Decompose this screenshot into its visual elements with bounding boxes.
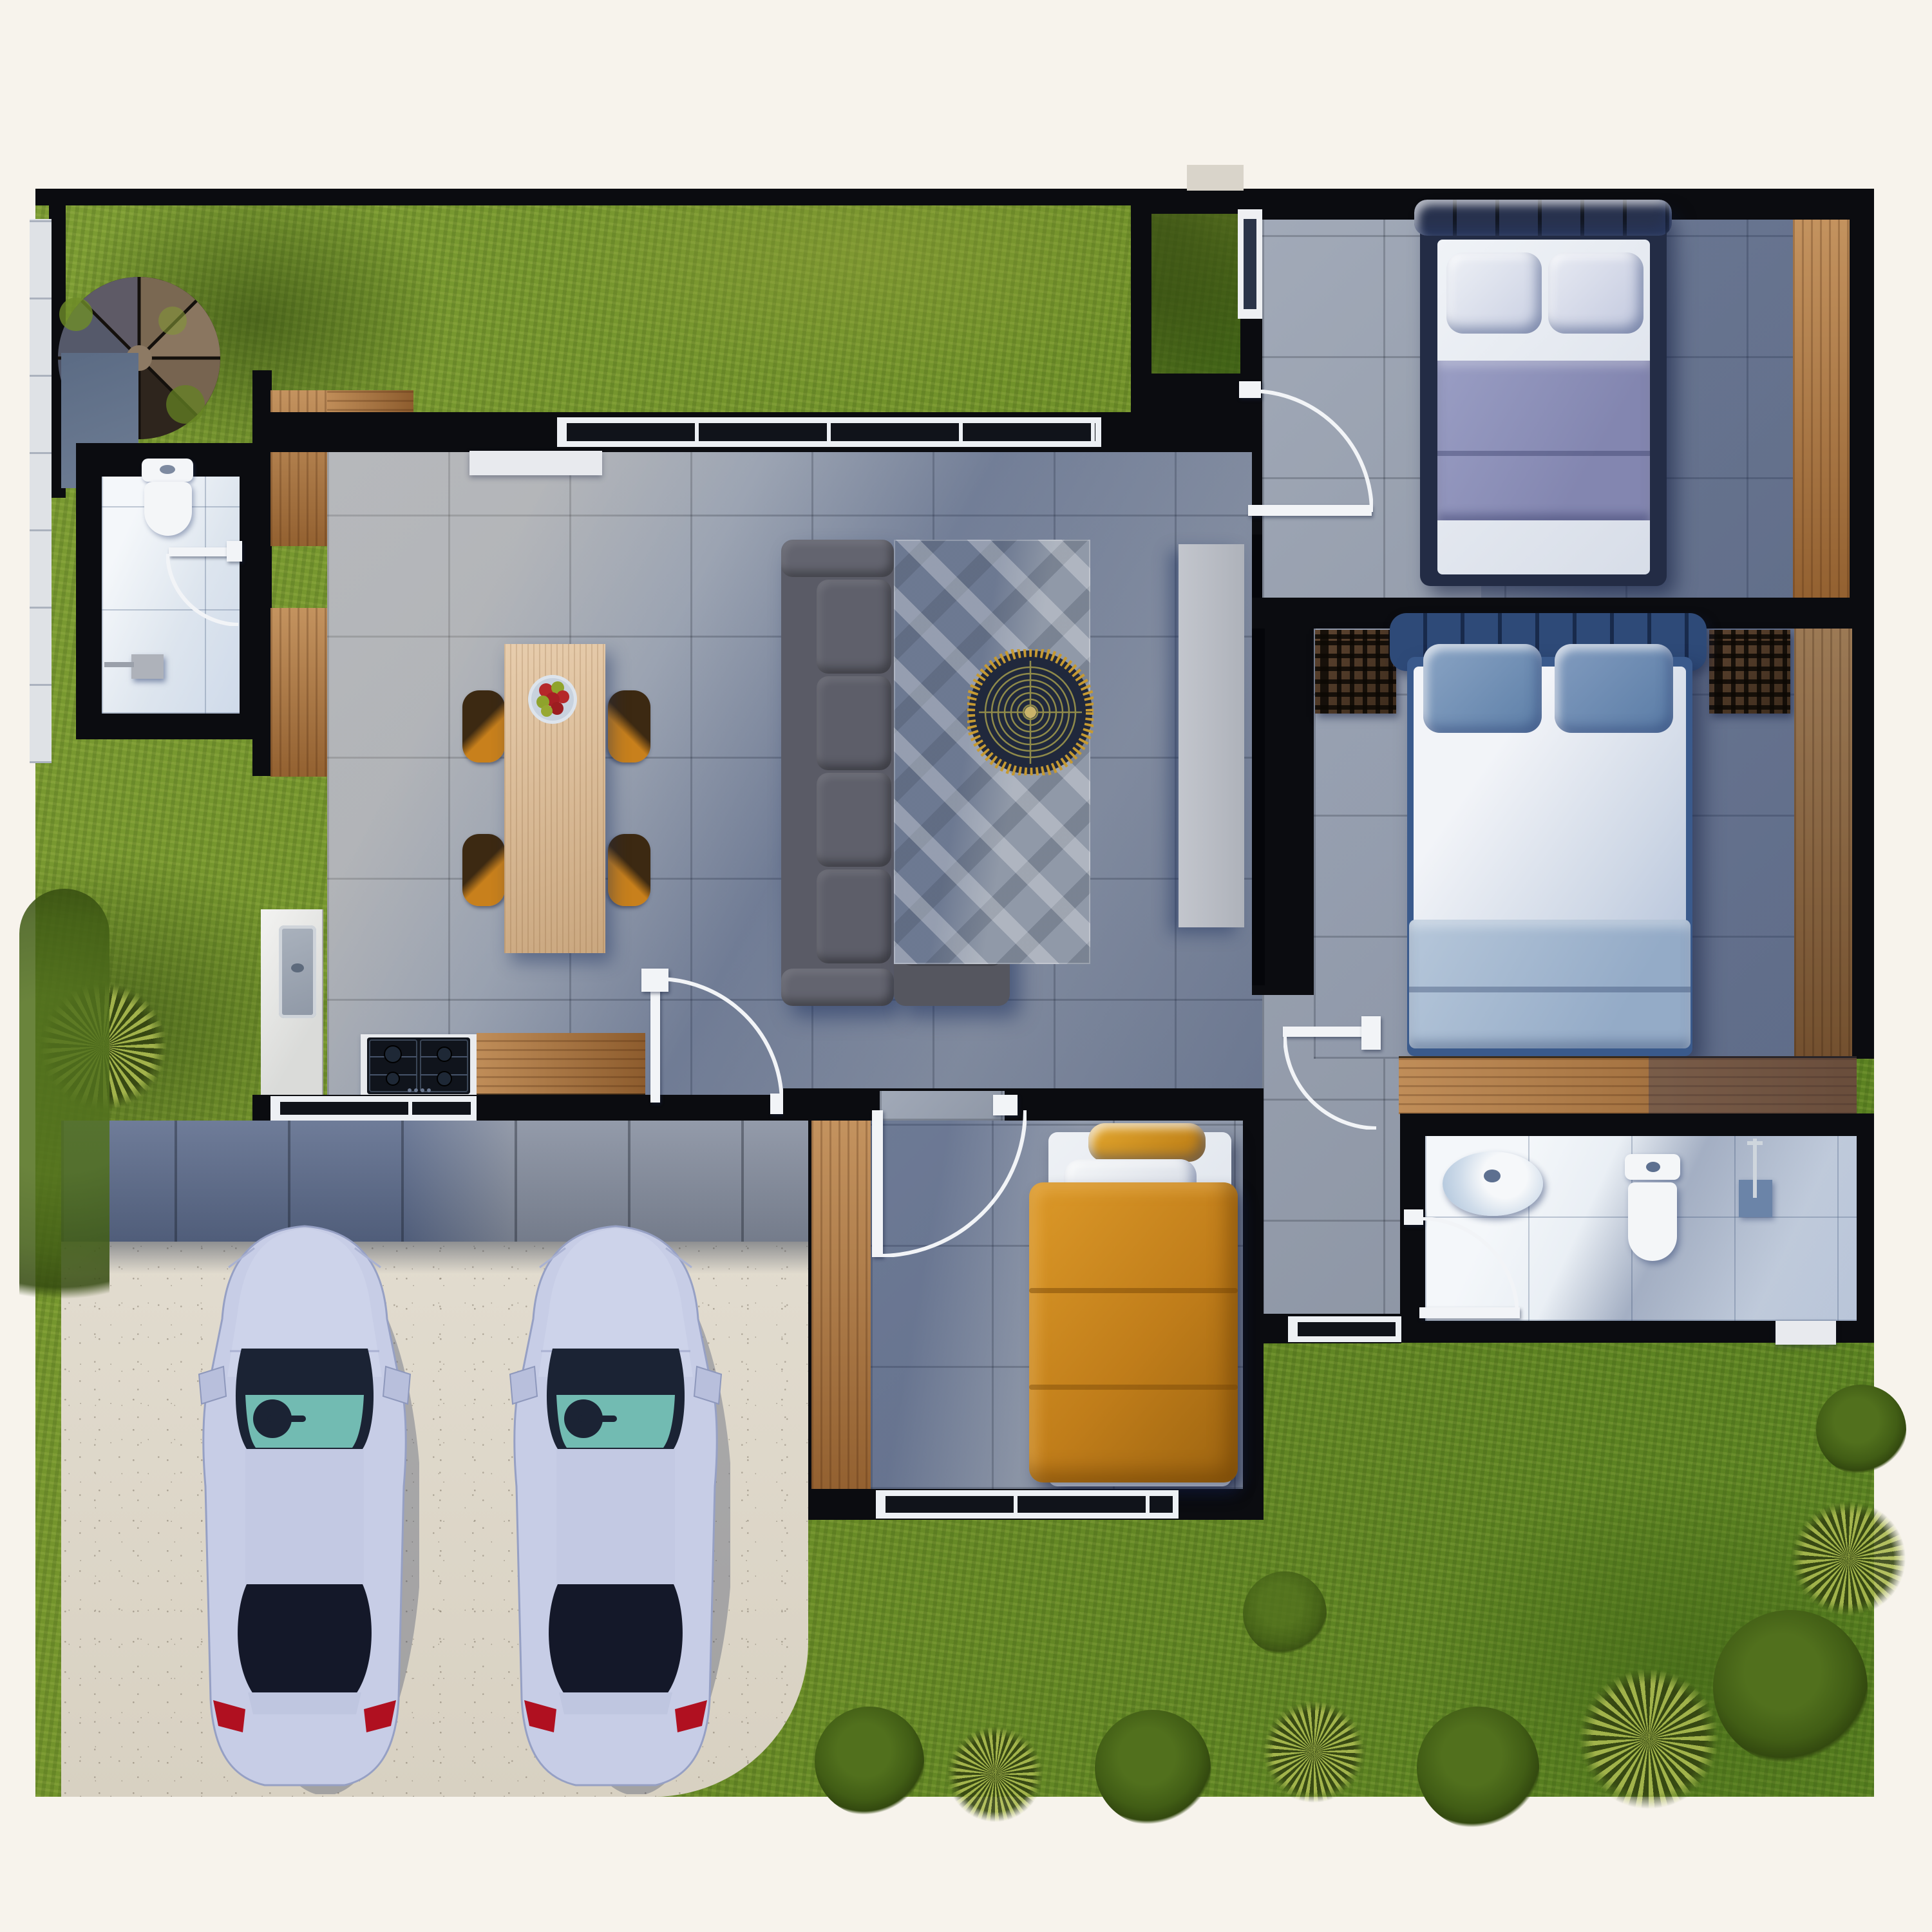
- sofa-armrest-bottom: [781, 969, 894, 1006]
- vessel-sink-drain: [1484, 1170, 1501, 1182]
- bedroom1-wardrobe: [1793, 220, 1850, 600]
- toilet-left-button: [160, 465, 175, 474]
- gas-cooktop: [367, 1037, 470, 1094]
- bush-bottom-5: [1417, 1707, 1539, 1829]
- bush-bottom-2: [947, 1726, 1043, 1823]
- living-top-windows: [557, 417, 1101, 447]
- sofa-cushion-4: [817, 869, 891, 963]
- dining-chair-bottom-left: [462, 834, 505, 906]
- bed3-duvet-fold2: [1029, 1385, 1238, 1390]
- plot-wall-top: [35, 189, 1262, 205]
- floor-plan-scene: [0, 0, 1932, 1932]
- sofa-cushion-1: [817, 580, 891, 674]
- bed1-duvet: [1437, 361, 1650, 520]
- bedroom3-door-gap-fill: [783, 1088, 880, 1121]
- fruit-bowl: [527, 674, 578, 725]
- window-sill-left: [469, 451, 602, 475]
- kitchen-south-window: [270, 1096, 477, 1121]
- bedroom2-door-arc: [1283, 1036, 1378, 1130]
- bathroom-right-step: [1776, 1321, 1836, 1345]
- bed2-pillow-left: [1423, 644, 1542, 733]
- entry-garden: [1151, 214, 1240, 374]
- dining-chair-bottom-right: [608, 834, 650, 906]
- bush-corner-right: [1713, 1610, 1868, 1765]
- living-door-arc: [656, 977, 783, 1104]
- bed1-pillow-right: [1548, 252, 1643, 334]
- bed1-pillow-left: [1446, 252, 1542, 334]
- bathroom-right-door-arc: [1421, 1217, 1519, 1315]
- bush-bottom-6: [1578, 1668, 1719, 1810]
- bed1-duvet-fold: [1437, 451, 1650, 456]
- front-step: [1187, 165, 1244, 191]
- vessel-sink: [1443, 1151, 1543, 1216]
- shower-arm: [104, 662, 134, 667]
- bush-bottom-1: [815, 1707, 924, 1816]
- bedroom3-window: [876, 1490, 1179, 1519]
- toilet-left-bowl: [144, 482, 192, 536]
- toilet-right-bowl: [1628, 1182, 1677, 1261]
- bush-right-edge-2: [1816, 1385, 1906, 1475]
- dining-chair-top-right: [608, 690, 650, 762]
- bush-right-edge-1: [1790, 1501, 1906, 1616]
- bed2-duvet: [1409, 920, 1690, 1048]
- hedge-left: [19, 889, 109, 1378]
- corridor-south-window: [1288, 1316, 1401, 1342]
- bed3-pillow-orange: [1088, 1123, 1206, 1162]
- bedroom2-wardrobe-right: [1794, 629, 1852, 1059]
- bed3-duvet: [1029, 1182, 1238, 1482]
- bed1-headboard-cushions: [1414, 200, 1672, 236]
- tv-console: [1179, 544, 1244, 927]
- toilet-brush-stem: [1753, 1139, 1757, 1198]
- shower-head: [131, 654, 164, 679]
- round-coffee-table: [967, 649, 1094, 775]
- bedroom2-wardrobe-shade: [1649, 1056, 1857, 1114]
- car-right: [501, 1222, 730, 1794]
- bedroom3-wardrobe: [811, 1121, 871, 1489]
- kitchen-sink-drain: [291, 963, 304, 972]
- dining-chair-top-left: [462, 690, 505, 762]
- toilet-brush-handle: [1747, 1141, 1763, 1145]
- bush-bottom-4: [1262, 1700, 1365, 1803]
- front-door-glass: [1244, 219, 1256, 309]
- nightstand-right: [1709, 630, 1790, 714]
- bed3-duvet-fold1: [1029, 1288, 1238, 1293]
- bedroom1-door-arc: [1249, 390, 1373, 513]
- bedroom3-door-arc: [878, 1109, 1027, 1257]
- cabinet-left-bottom: [270, 608, 327, 777]
- bush-bottom-3: [1095, 1710, 1211, 1826]
- bed2-pillow-right: [1555, 644, 1673, 733]
- nightstand-left: [1315, 630, 1396, 714]
- kitchen-counter-wood: [477, 1033, 645, 1096]
- sofa-cushion-3: [817, 773, 891, 867]
- sofa-cushion-2: [817, 676, 891, 770]
- bedroom1-right-wall: [1850, 205, 1874, 600]
- car-left: [190, 1222, 419, 1794]
- side-path-tiles: [30, 219, 52, 763]
- bed2-duvet-fold: [1409, 987, 1690, 992]
- toilet-right-button: [1646, 1162, 1660, 1172]
- bathroom-left-door-arc: [166, 553, 240, 626]
- sofa-armrest-top: [781, 540, 894, 577]
- bush-mid-lawn: [1243, 1571, 1327, 1655]
- bedroom2-right-wall: [1852, 629, 1874, 1059]
